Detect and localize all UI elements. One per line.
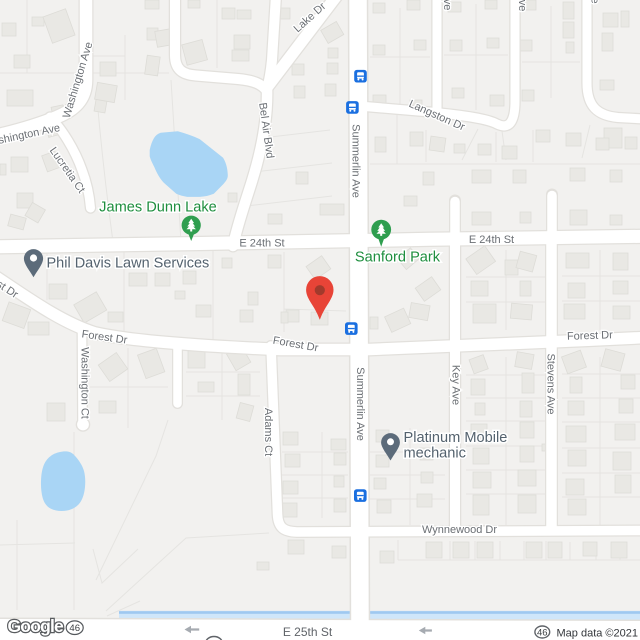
svg-text:mechanic: mechanic [404, 446, 466, 462]
svg-text:Google: Google [8, 616, 65, 636]
svg-text:Phil Davis Lawn Services: Phil Davis Lawn Services [47, 256, 210, 272]
svg-text:Key Ave: Key Ave [450, 365, 462, 405]
svg-text:Adams Ct: Adams Ct [262, 408, 274, 456]
svg-text:Platinum Mobile: Platinum Mobile [404, 430, 508, 446]
svg-text:e: e [589, 0, 601, 4]
svg-text:Sanford Park: Sanford Park [355, 250, 441, 266]
svg-text:Map data ©2021: Map data ©2021 [557, 628, 639, 640]
svg-text:Forest Dr: Forest Dr [567, 329, 614, 343]
svg-text:Summerlin Ave: Summerlin Ave [350, 124, 362, 198]
svg-text:James Dunn Lake: James Dunn Lake [99, 200, 217, 216]
svg-text:46: 46 [69, 623, 80, 634]
svg-text:E 24th St: E 24th St [469, 234, 514, 246]
svg-text:Wynnewood Dr: Wynnewood Dr [422, 524, 497, 536]
svg-text:Stevens Ave: Stevens Ave [545, 354, 557, 415]
svg-text:E 24th St: E 24th St [239, 238, 284, 250]
svg-text:Ave: Ave [441, 0, 453, 10]
svg-text:Washington Ct: Washington Ct [79, 347, 91, 419]
svg-text:Ave: Ave [516, 0, 528, 11]
svg-text:Summerlin Ave: Summerlin Ave [354, 367, 366, 441]
svg-text:46: 46 [537, 627, 548, 638]
svg-text:E 25th St: E 25th St [283, 625, 333, 639]
